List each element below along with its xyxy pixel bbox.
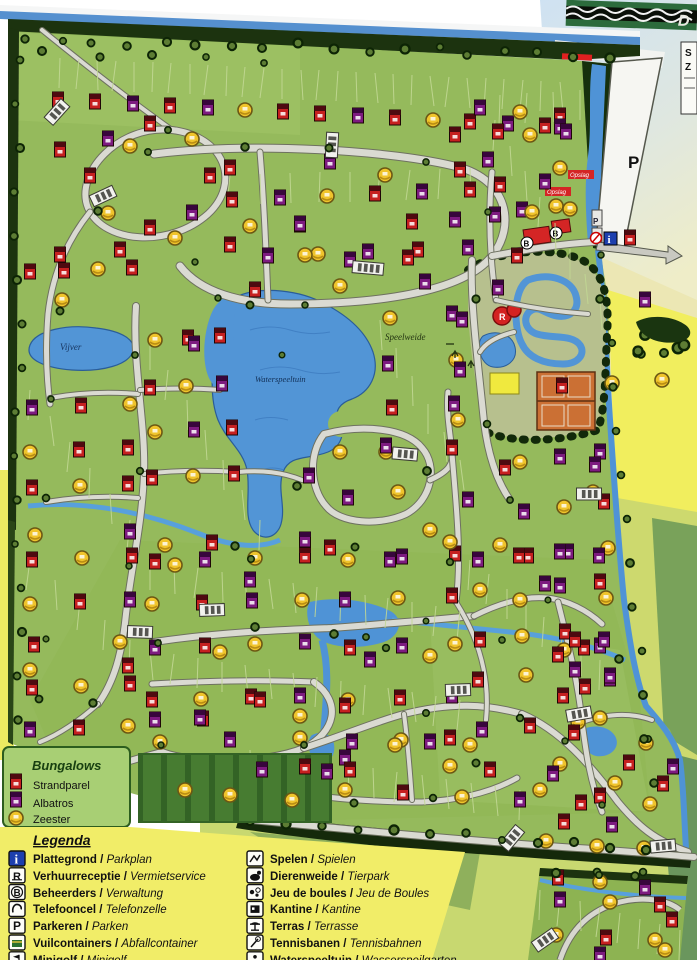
svg-text:Kantine / Kantine: Kantine / Kantine: [270, 904, 361, 916]
svg-text:Vijver: Vijver: [60, 342, 82, 352]
svg-text:S: S: [685, 48, 692, 59]
svg-text:Verhuurreceptie / Vermietservi: Verhuurreceptie / Vermietservice: [33, 871, 206, 883]
svg-text:Jeu de boules / Jeu de Boules: Jeu de boules / Jeu de Boules: [270, 888, 429, 900]
svg-text:Z: Z: [685, 62, 691, 73]
svg-text:Waterspeeltuin: Waterspeeltuin: [255, 374, 306, 384]
svg-text:Minigolf / Minigolf: Minigolf / Minigolf: [33, 955, 128, 960]
svg-text:Legenda: Legenda: [33, 832, 91, 848]
svg-text:P: P: [628, 153, 639, 172]
svg-text:Terras / Terrasse: Terras / Terrasse: [270, 921, 358, 933]
svg-text:R: R: [499, 312, 506, 322]
svg-text:i: i: [15, 852, 19, 867]
svg-text:Waterspeeltuin / Wasserspeilga: Waterspeeltuin / Wasserspeilgarten: [270, 955, 457, 960]
svg-text:Albatros: Albatros: [33, 798, 74, 810]
svg-text:i: i: [608, 234, 611, 246]
svg-text:B: B: [14, 888, 21, 899]
svg-text:D: D: [678, 13, 691, 30]
svg-text:Vuilcontainers / Abfallcontain: Vuilcontainers / Abfallcontainer: [33, 938, 199, 950]
svg-text:P: P: [13, 919, 21, 933]
svg-text:Dierenweide / Tierpark: Dierenweide / Tierpark: [270, 871, 391, 883]
svg-text:Parkeren / Parken: Parkeren / Parken: [33, 921, 128, 933]
svg-text:Plattegrond / Parkplan: Plattegrond / Parkplan: [33, 854, 152, 866]
svg-text:Telefooncel / Telefonzelle: Telefooncel / Telefonzelle: [33, 904, 167, 916]
svg-text:B: B: [524, 240, 530, 249]
svg-text:Opslag: Opslag: [570, 173, 590, 179]
svg-text:Bungalows: Bungalows: [32, 758, 101, 773]
svg-text:Zeester: Zeester: [33, 814, 71, 826]
svg-text:Speelweide: Speelweide: [385, 332, 425, 342]
svg-text:P: P: [593, 217, 599, 226]
svg-text:R: R: [13, 871, 21, 883]
svg-text:Opslag: Opslag: [547, 190, 567, 196]
svg-text:Strandparel: Strandparel: [33, 780, 90, 792]
svg-text:Tennisbanen / Tennisbahnen: Tennisbanen / Tennisbahnen: [270, 938, 422, 950]
svg-text:Spelen / Spielen: Spelen / Spielen: [270, 854, 356, 866]
svg-text:Beheerders / Verwaltung: Beheerders / Verwaltung: [33, 888, 164, 900]
